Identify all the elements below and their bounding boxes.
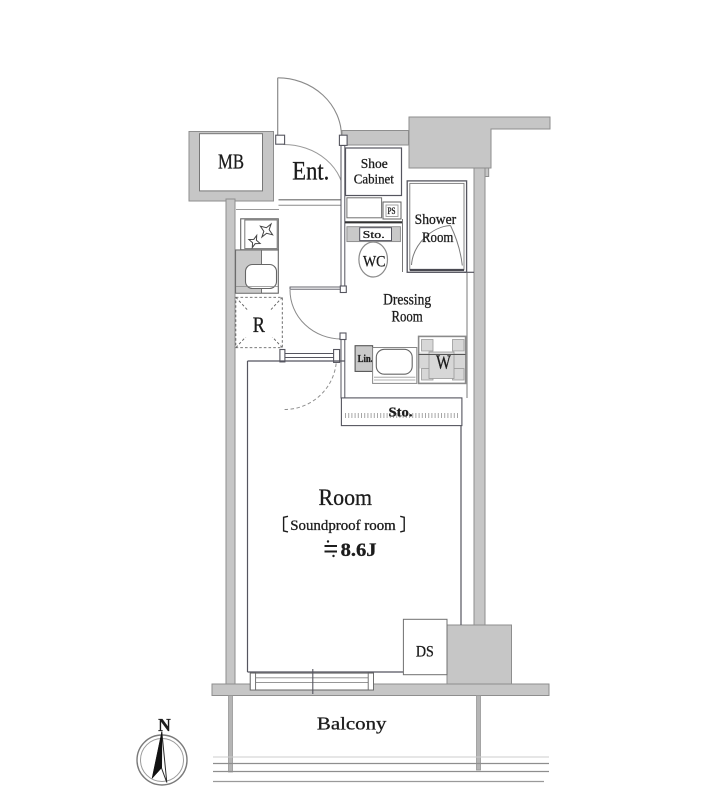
svg-text:Room: Room xyxy=(422,230,454,246)
svg-text:Sto.: Sto. xyxy=(389,405,413,420)
svg-text:MB: MB xyxy=(218,150,244,174)
svg-text:PS: PS xyxy=(388,206,396,216)
svg-text:Room: Room xyxy=(392,309,423,326)
svg-text:Ent.: Ent. xyxy=(292,157,329,186)
svg-text:Lin.: Lin. xyxy=(358,354,374,365)
svg-text:Room: Room xyxy=(319,485,373,510)
svg-text:Cabinet: Cabinet xyxy=(354,173,394,188)
svg-text:R: R xyxy=(253,312,265,337)
svg-text:Balcony: Balcony xyxy=(317,714,387,734)
svg-text:8.6J: 8.6J xyxy=(341,540,377,561)
svg-text:Shoe: Shoe xyxy=(361,157,388,172)
svg-text:Soundproof room: Soundproof room xyxy=(290,518,396,534)
svg-text:WC: WC xyxy=(363,252,386,270)
svg-text:DS: DS xyxy=(416,644,434,661)
svg-text:Sto.: Sto. xyxy=(363,230,385,241)
svg-text:W: W xyxy=(436,351,451,373)
svg-text:Dressing: Dressing xyxy=(383,291,431,308)
svg-text:Shower: Shower xyxy=(415,212,457,228)
svg-text:N: N xyxy=(158,715,171,735)
